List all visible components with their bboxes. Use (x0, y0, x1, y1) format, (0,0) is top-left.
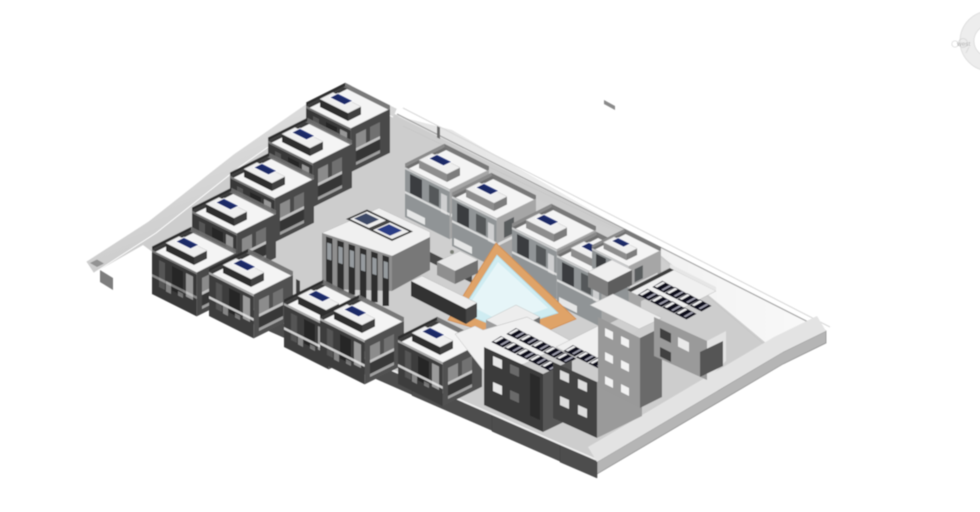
svg-text:west: west (956, 41, 971, 48)
